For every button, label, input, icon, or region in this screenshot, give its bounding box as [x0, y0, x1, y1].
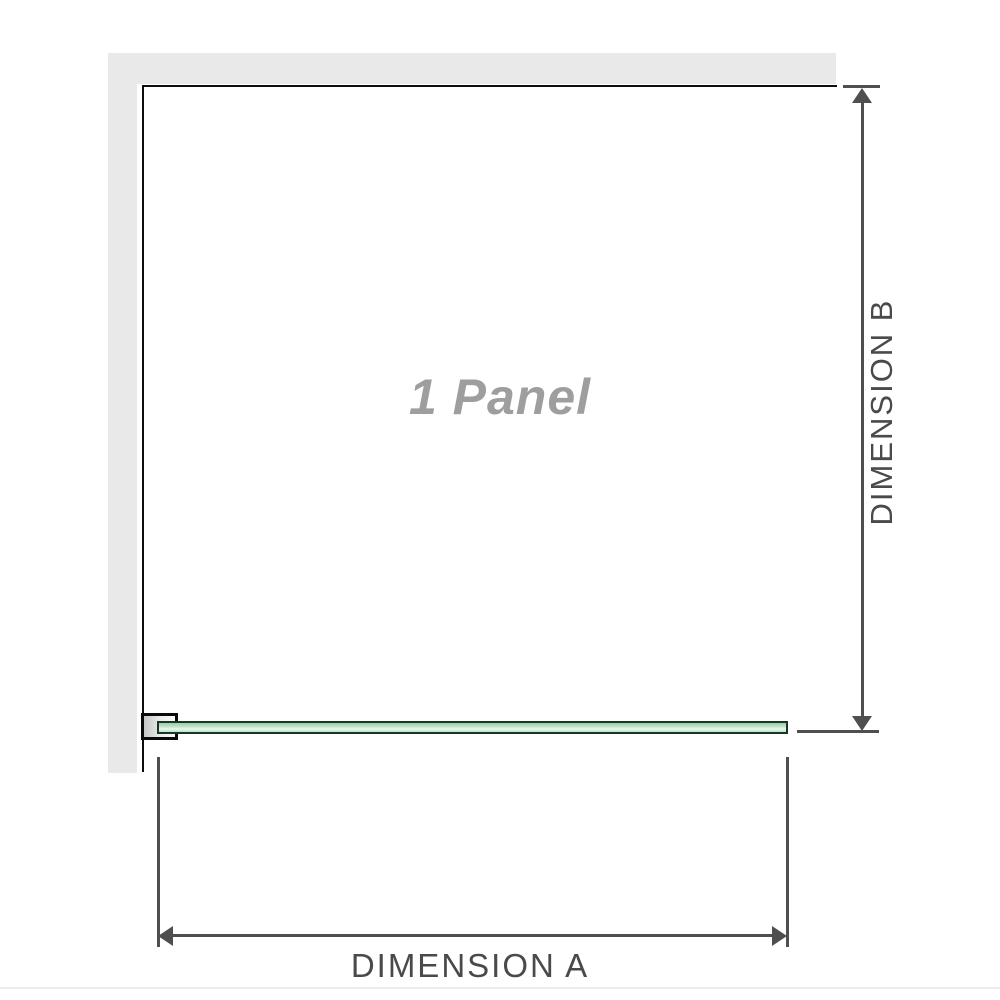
panel-count-label: 1 Panel [400, 368, 600, 426]
dimension-a-line [170, 934, 775, 937]
panel-dimension-diagram: 1 Panel DIMENSION B DIMENSION A [0, 0, 1000, 1000]
dimension-a-right-extension [786, 757, 789, 947]
arrow-down-icon [852, 716, 872, 731]
bottom-edge-divider [0, 987, 1000, 989]
wall-top-band [108, 53, 836, 84]
dimension-a-label: DIMENSION A [351, 947, 589, 985]
panel-outline-top [143, 85, 837, 87]
dimension-b-bottom-tick [797, 730, 879, 733]
dimension-a-left-extension [157, 757, 160, 947]
panel-outline-left [142, 85, 144, 772]
wall-left-band [108, 53, 137, 773]
arrow-left-icon [158, 926, 173, 946]
arrow-right-icon [772, 926, 787, 946]
glass-panel-bar [157, 721, 788, 734]
dimension-b-label: DIMENSION B [864, 299, 900, 526]
